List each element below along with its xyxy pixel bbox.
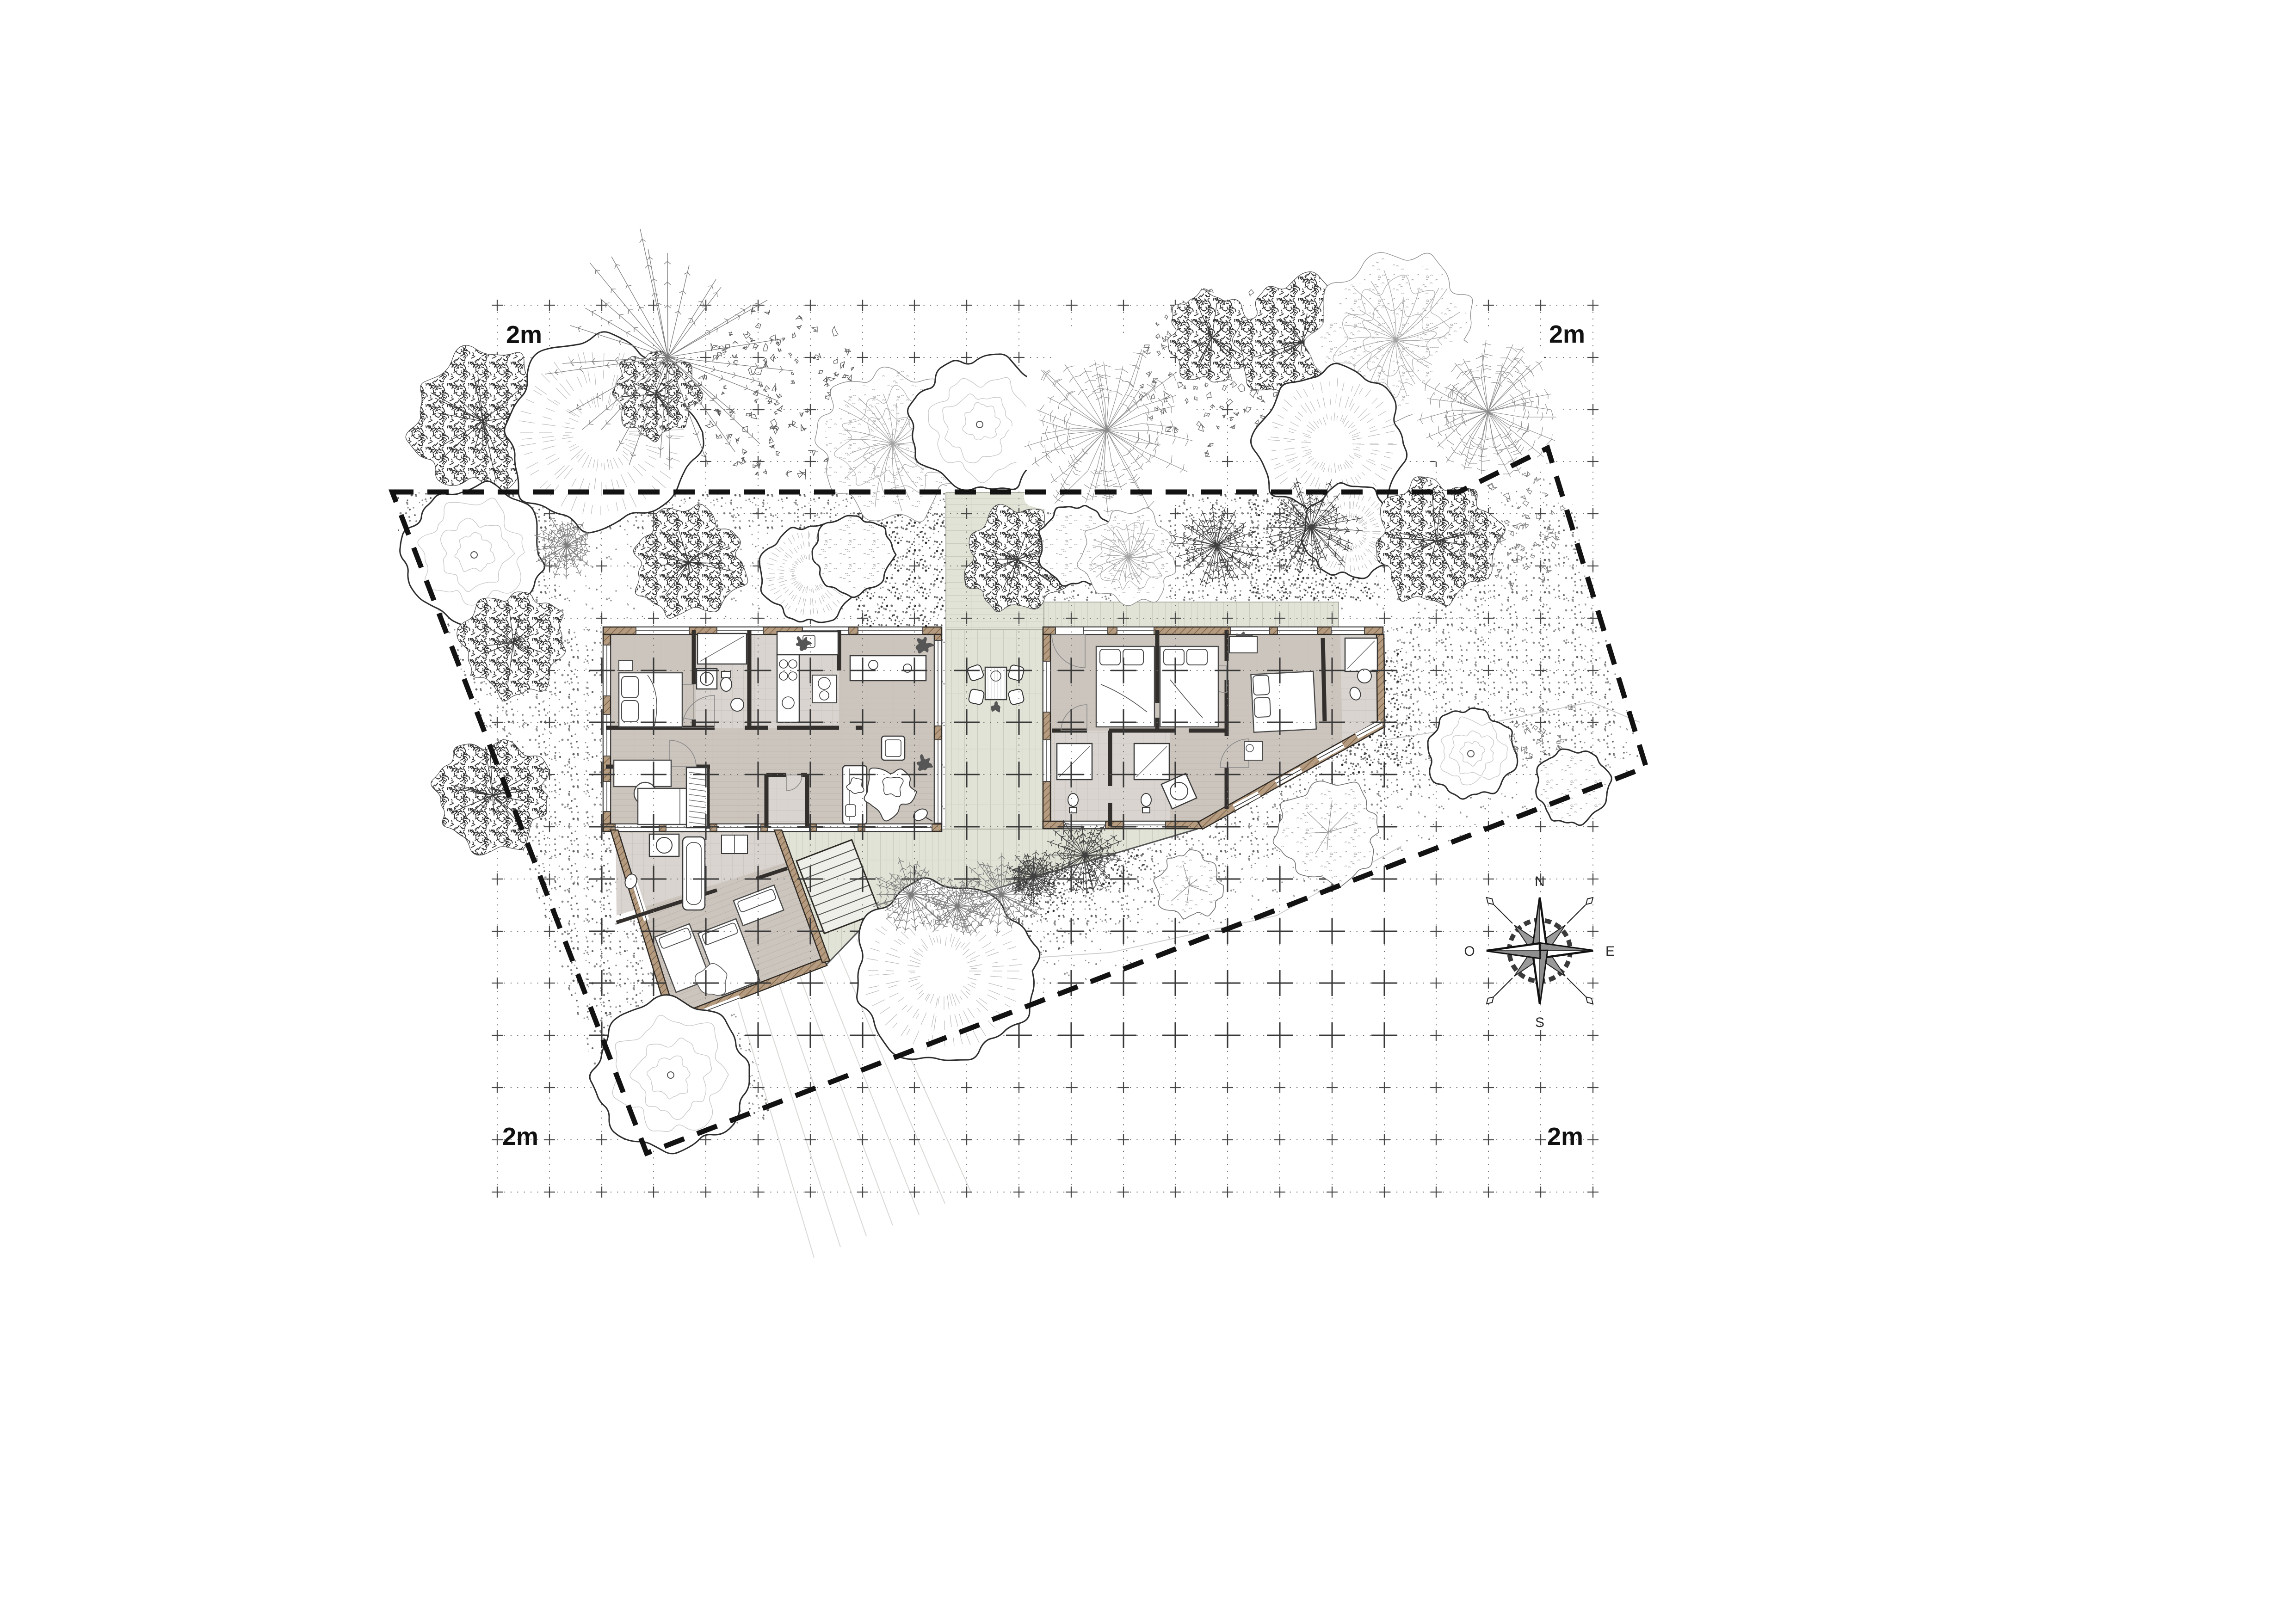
svg-text:O: O (1464, 944, 1475, 959)
svg-text:2m: 2m (1547, 1123, 1583, 1150)
svg-text:2m: 2m (1549, 320, 1585, 348)
svg-text:N: N (1535, 874, 1545, 889)
svg-text:E: E (1605, 944, 1615, 959)
svg-text:2m: 2m (502, 1123, 538, 1150)
svg-text:2m: 2m (506, 321, 542, 349)
svg-text:S: S (1535, 1015, 1544, 1030)
